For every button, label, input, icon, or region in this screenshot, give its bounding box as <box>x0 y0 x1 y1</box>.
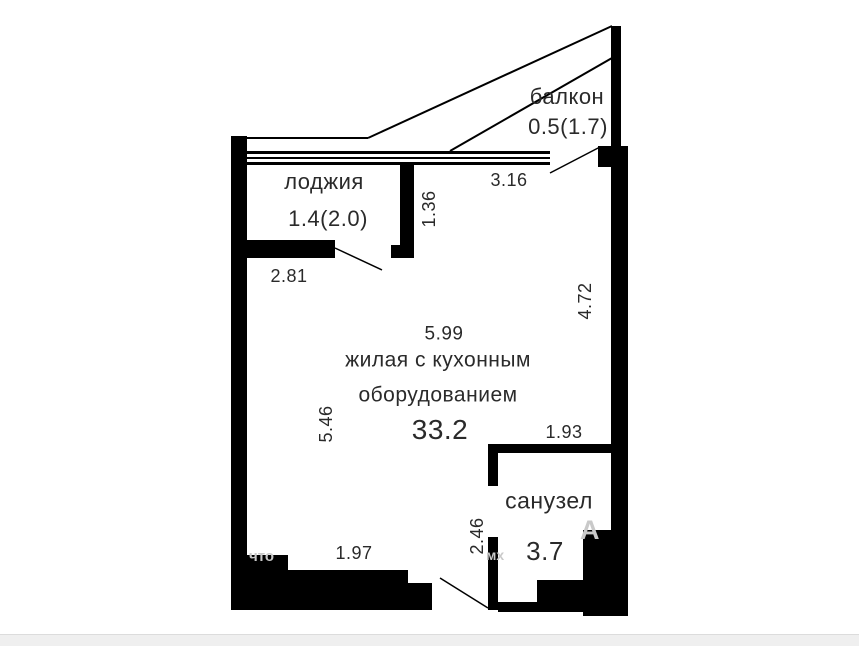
balcony-label: балкон <box>530 86 604 108</box>
footer-band <box>0 634 859 646</box>
dim-loggia-depth: 1.36 <box>420 190 438 227</box>
dim-balcony-length: 3.16 <box>490 171 527 189</box>
balcony-pointer-line <box>550 147 600 173</box>
wall-loggia-bottom <box>247 240 335 258</box>
wall-right-corner-block <box>598 146 628 167</box>
dim-living-depth: 5.46 <box>317 405 335 442</box>
wall-right <box>611 167 628 616</box>
dim-bathroom-width: 1.93 <box>545 423 582 441</box>
loggia-door-swing-line <box>335 248 382 270</box>
wall-bottom-step <box>408 583 432 610</box>
entry-door-swing-line <box>440 578 488 608</box>
wall-loggia-right-stem <box>400 165 414 245</box>
floor-plan-canvas: балкон 0.5(1.7) лоджия 1.4(2.0) жилая с … <box>0 0 859 646</box>
dim-bottom-segment: 1.97 <box>335 544 372 562</box>
wall-balcony-right <box>611 26 621 147</box>
wall-left <box>231 136 247 610</box>
dim-right-side: 4.72 <box>576 282 594 319</box>
railing-mid-line <box>247 157 550 159</box>
bathroom-area: 3.7 <box>526 538 564 564</box>
wall-bathroom-step <box>537 580 583 612</box>
dim-living-width: 5.99 <box>425 325 464 344</box>
bathroom-label: санузел <box>505 490 593 513</box>
loggia-window-railing <box>247 151 550 165</box>
wall-bathroom-left-stub <box>488 453 498 486</box>
watermark-fragment-3: А <box>580 517 600 544</box>
wall-bathroom-bottom <box>498 602 538 612</box>
wall-bathroom-top <box>488 444 612 453</box>
living-room-area: 33.2 <box>412 416 469 444</box>
balcony-area: 0.5(1.7) <box>528 116 608 138</box>
dim-loggia-width: 2.81 <box>270 267 307 285</box>
watermark-fragment-2: мх <box>486 548 504 562</box>
loggia-area: 1.4(2.0) <box>288 208 368 230</box>
dim-bathroom-depth: 2.46 <box>468 517 486 554</box>
living-room-label-line1: жилая с кухонным <box>345 350 531 371</box>
wall-bottom-main <box>231 570 408 610</box>
loggia-label: лоджия <box>284 171 364 193</box>
watermark-fragment-1: что <box>249 549 274 564</box>
wall-loggia-right-foot <box>391 245 414 258</box>
living-room-label-line2: оборудованием <box>358 385 517 406</box>
